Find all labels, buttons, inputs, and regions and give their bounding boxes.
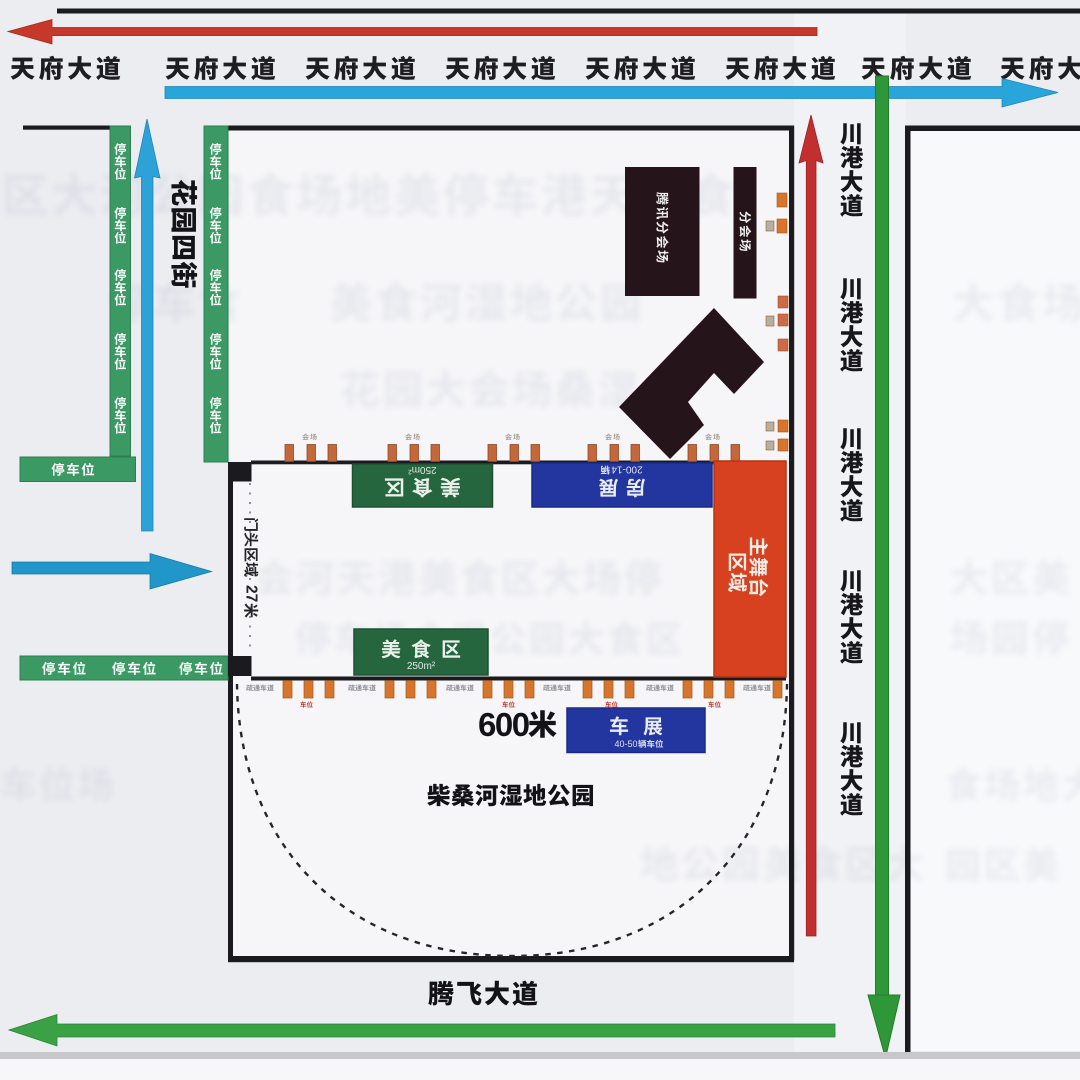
svg-text:600: 600 bbox=[478, 706, 529, 743]
svg-text:27: 27 bbox=[243, 585, 260, 602]
svg-text:250m²: 250m² bbox=[407, 661, 436, 672]
svg-text:200-14: 200-14 bbox=[611, 464, 643, 475]
svg-text:250m²: 250m² bbox=[408, 464, 437, 475]
svg-text:40-50: 40-50 bbox=[614, 739, 637, 749]
